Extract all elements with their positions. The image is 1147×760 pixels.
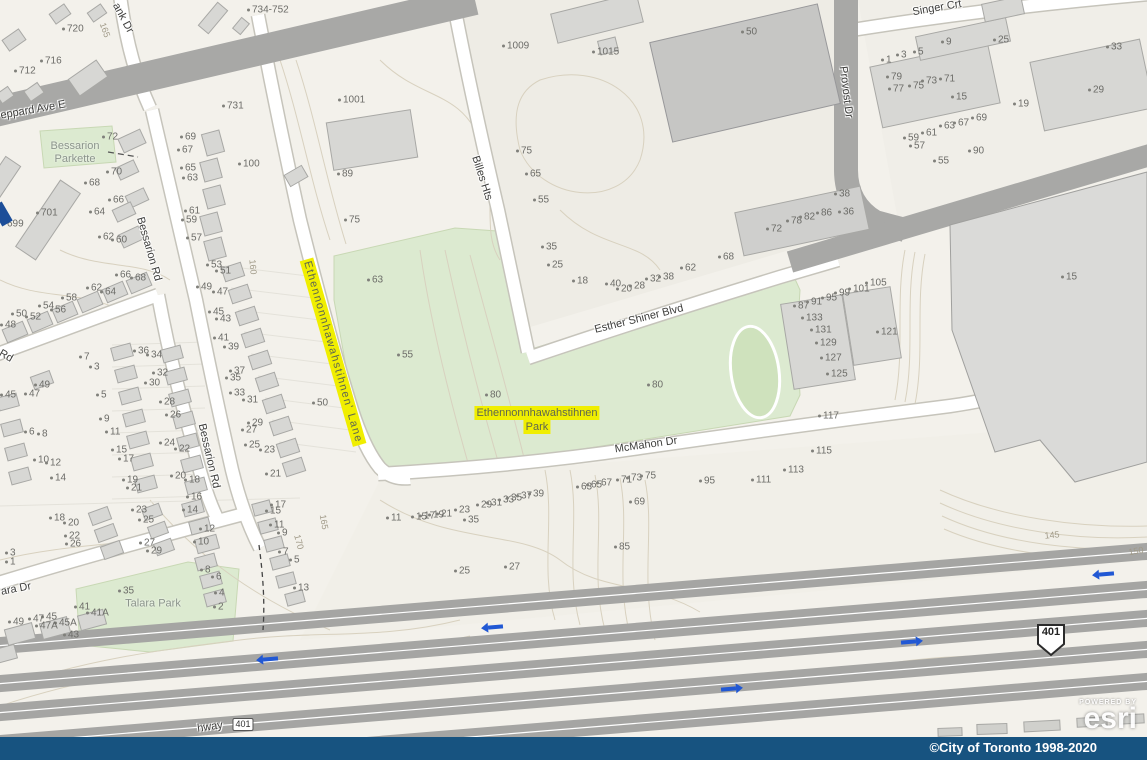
address-label: 7 [79, 352, 90, 363]
address-label: 79 [886, 72, 902, 83]
address-label: 35 [225, 373, 241, 384]
address-label: 67 [596, 478, 612, 489]
labels-layer: 734-752720716712100110091015507311008975… [0, 0, 1147, 760]
address-label: 72 [766, 224, 782, 235]
address-label: 9 [99, 414, 110, 425]
address-label: 60 [111, 235, 127, 246]
address-label: 55 [397, 350, 413, 361]
address-label: 49 [8, 617, 24, 628]
address-label: 5 [289, 555, 300, 566]
address-label: 11 [105, 427, 120, 438]
address-label: 12 [45, 458, 61, 469]
address-label: 9 [941, 37, 952, 48]
address-label: 25 [993, 35, 1009, 46]
address-label: 100 [238, 159, 260, 170]
address-label: 16 [186, 492, 202, 503]
address-label: 26 [165, 410, 181, 421]
address-label: 33 [1106, 42, 1122, 53]
street-label: Esther Shiner Blvd [593, 302, 684, 336]
address-label: 10 [193, 537, 209, 548]
address-label: 131 [810, 325, 832, 336]
traffic-direction-arrow [1099, 571, 1114, 576]
address-label: 9 [277, 528, 288, 539]
address-label: 75 [516, 146, 532, 157]
address-label: 56 [50, 305, 66, 316]
address-label: 5 [96, 390, 107, 401]
street-label: McMahon Dr [614, 435, 678, 456]
address-label: 3 [896, 50, 907, 61]
address-label: 29 [1088, 85, 1104, 96]
address-label: 45 [0, 390, 16, 401]
address-label: 58 [61, 293, 77, 304]
address-label: 21 [265, 469, 281, 480]
contour-elevation-label: 165 [318, 514, 330, 531]
address-label: 25 [454, 566, 470, 577]
address-label: 22 [174, 444, 190, 455]
address-label: 105 [865, 278, 887, 289]
address-label: 67 [953, 118, 969, 129]
address-label: 1 [881, 55, 892, 66]
address-label: 51 [215, 266, 231, 277]
address-label: 91 [806, 297, 822, 308]
address-label: 75 [344, 215, 360, 226]
address-label: 18 [572, 276, 588, 287]
address-label: 8 [200, 565, 211, 576]
address-label: 716 [40, 56, 62, 67]
highway-401-shield: 401 [1035, 622, 1067, 658]
street-label: Rd [0, 347, 15, 364]
address-label: 64 [100, 287, 116, 298]
address-label: 19 [1013, 99, 1029, 110]
address-label: 12 [199, 524, 215, 535]
address-label: 1001 [338, 95, 365, 106]
address-label: 39 [223, 342, 239, 353]
address-label: 7 [278, 547, 289, 558]
address-label: 89 [337, 169, 353, 180]
address-label: 18 [184, 475, 200, 486]
address-label: 57 [186, 233, 202, 244]
address-label: 29 [146, 546, 162, 557]
address-label: 69 [971, 113, 987, 124]
address-label: 734-752 [247, 5, 289, 16]
address-label: 15 [951, 92, 967, 103]
contour-elevation-label: 170 [292, 533, 306, 550]
address-label: 111 [751, 475, 771, 486]
address-label: 30 [144, 378, 160, 389]
traffic-direction-arrow [901, 639, 916, 644]
address-label: 28 [629, 281, 645, 292]
address-label: 57 [909, 141, 925, 152]
address-label: 23 [259, 445, 275, 456]
street-label: Billes Hts [469, 154, 495, 201]
address-label: 113 [783, 465, 804, 476]
address-label: 25 [244, 440, 260, 451]
address-label: 68 [130, 273, 146, 284]
address-label: 34 [146, 350, 162, 361]
contour-elevation-label: 145 [1044, 529, 1060, 541]
contour-elevation-label: 150 [1128, 545, 1145, 557]
park-name-label: BessarionParkette [51, 140, 100, 166]
address-label: 62 [680, 263, 696, 274]
address-label: 47 [24, 389, 40, 400]
address-label: 26 [65, 539, 81, 550]
address-label: 50 [312, 398, 328, 409]
address-label: 21 [436, 509, 452, 520]
address-label: 68 [84, 178, 100, 189]
address-label: 35 [463, 515, 479, 526]
address-label: 70 [106, 167, 122, 178]
park-name-label: Talara Park [125, 598, 181, 611]
address-label: 86 [816, 208, 832, 219]
address-label: 25 [547, 260, 563, 271]
address-label: 67 [177, 145, 193, 156]
address-label: 14 [182, 505, 198, 516]
address-label: 41A [86, 608, 109, 619]
address-label: 731 [222, 101, 244, 112]
address-label: 47 [28, 614, 44, 625]
address-label: 20 [63, 518, 79, 529]
street-label: hway [196, 719, 223, 734]
address-label: 21 [126, 483, 142, 494]
address-label: 43 [63, 630, 79, 641]
address-label: 701 [36, 208, 58, 219]
address-label: 133 [801, 313, 823, 324]
address-label: 125 [826, 369, 848, 380]
address-label: 80 [485, 390, 501, 401]
address-label: 17 [118, 454, 134, 465]
address-label: 1 [5, 557, 16, 568]
highlighted-lane-label: Ethennonnhawahstihnen' Lane [300, 258, 367, 447]
address-label: 36 [838, 207, 854, 218]
address-label: 47 [212, 287, 228, 298]
address-label: 52 [25, 312, 41, 323]
highway-401-shield: 401 [232, 714, 253, 732]
esri-watermark: POWERED BY esri [1079, 699, 1137, 732]
address-label: 49 [196, 282, 212, 293]
address-label: 82 [799, 212, 815, 223]
address-label: 14 [50, 473, 66, 484]
address-label: 121 [876, 327, 898, 338]
traffic-direction-arrow [263, 656, 278, 661]
address-label: 11 [386, 513, 401, 524]
address-label: 66 [115, 270, 131, 281]
address-label: 65 [525, 169, 541, 180]
address-label: 55 [533, 195, 549, 206]
address-label: 68 [718, 252, 734, 263]
street-label: Provost Dr [837, 65, 855, 118]
address-label: 80 [647, 380, 663, 391]
address-label: 64 [89, 207, 105, 218]
address-label: 8 [37, 429, 48, 440]
address-label: 720 [62, 24, 84, 35]
address-label: 1015 [592, 47, 619, 58]
address-label: 2 [213, 602, 224, 613]
esri-logo: esri [1079, 706, 1137, 732]
street-label: ank Dr [110, 1, 136, 35]
contour-elevation-label: 160 [247, 259, 258, 275]
address-label: 59 [181, 215, 197, 226]
address-label: 35 [541, 242, 557, 253]
traffic-direction-arrow [488, 624, 503, 629]
address-label: 115 [811, 446, 832, 457]
address-label: 63 [367, 275, 383, 286]
address-label: 3 [89, 362, 100, 373]
address-label: 50 [741, 27, 757, 38]
address-label: 5 [913, 47, 924, 58]
address-label: 43 [215, 314, 231, 325]
address-label: 63 [182, 173, 198, 184]
address-label: 75 [640, 471, 656, 482]
address-label: 66 [108, 195, 124, 206]
address-label: 6 [24, 427, 35, 438]
street-label: Singer Crt [912, 0, 963, 18]
address-label: 15 [265, 506, 281, 517]
copyright-text: ©City of Toronto 1998-2020 [929, 740, 1097, 755]
address-label: 71 [939, 74, 955, 85]
address-label: 27 [504, 562, 520, 573]
street-label: ara Dr [0, 580, 32, 598]
address-label: 31 [242, 395, 258, 406]
address-label: 35 [118, 586, 134, 597]
address-label: 61 [921, 128, 937, 139]
address-label: 85 [614, 542, 630, 553]
address-label: 69 [629, 497, 645, 508]
address-label: 28 [159, 397, 175, 408]
traffic-direction-arrow [721, 686, 736, 691]
highlighted-park-label: EthennonnhawahstihnenPark [474, 406, 599, 434]
address-label: 15 [1061, 272, 1077, 283]
address-label: 90 [968, 146, 984, 157]
address-label: 13 [293, 583, 309, 594]
address-label: 117 [818, 411, 839, 422]
address-label: 73 [921, 76, 937, 87]
attribution-bar: ©City of Toronto 1998-2020 [0, 737, 1147, 760]
contour-elevation-label: 165 [98, 21, 113, 39]
address-label: 6 [211, 572, 222, 583]
address-label: 712 [14, 66, 36, 77]
address-label: 127 [820, 353, 842, 364]
address-label: 4 [214, 588, 225, 599]
address-label: 38 [658, 272, 674, 283]
address-label: 55 [933, 156, 949, 167]
street-label: eppard Ave E [0, 98, 66, 121]
address-label: 77 [888, 84, 904, 95]
address-label: 1009 [502, 41, 529, 52]
address-label: 69 [180, 132, 196, 143]
address-label: 72 [102, 132, 118, 143]
address-label: 25 [138, 515, 154, 526]
address-label: 129 [815, 338, 837, 349]
address-label: 24 [159, 438, 175, 449]
address-label: 27 [241, 425, 257, 436]
map-canvas[interactable]: 734-752720716712100110091015507311008975… [0, 0, 1147, 760]
address-label: 39 [528, 489, 544, 500]
address-label: 48 [0, 320, 16, 331]
address-label: 95 [699, 476, 715, 487]
address-label: 38 [834, 189, 850, 200]
